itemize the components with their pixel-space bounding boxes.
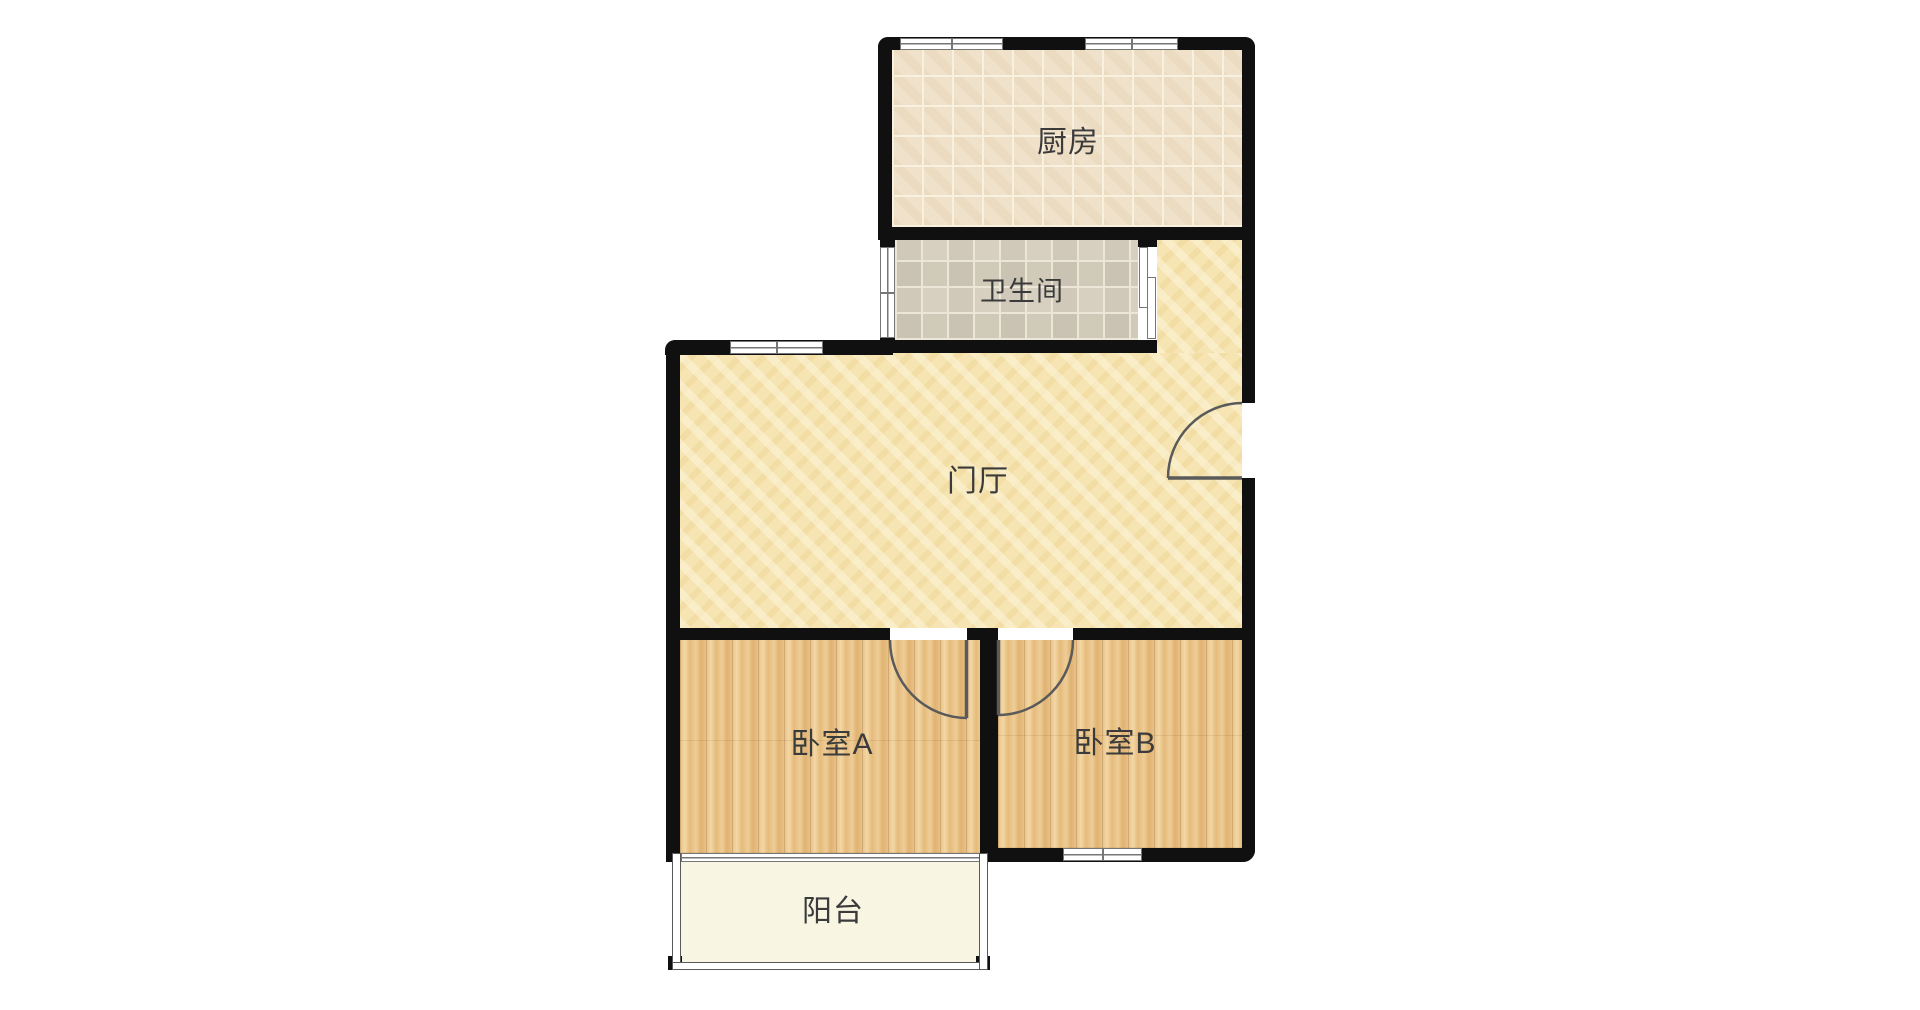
wall-left bbox=[666, 340, 680, 862]
bedroom-b-label: 卧室B bbox=[1073, 718, 1156, 762]
window-divider bbox=[881, 292, 894, 294]
wall-right-upper bbox=[1242, 37, 1255, 403]
hall-label: 门厅 bbox=[947, 456, 1009, 500]
bathroom-label: 卫生间 bbox=[980, 270, 1064, 309]
wall-hall-bottom-right bbox=[1073, 628, 1255, 640]
sliding-door-panel-2 bbox=[1147, 277, 1156, 339]
balcony-railing-right bbox=[979, 853, 988, 970]
corridor-floor bbox=[1157, 240, 1242, 355]
kitchen-window-1 bbox=[900, 38, 1003, 50]
bedroom-b-window bbox=[1063, 848, 1142, 861]
wall-bedroom-divider bbox=[980, 638, 998, 862]
window-divider bbox=[1131, 39, 1133, 49]
wall-hall-bottom-left bbox=[666, 628, 890, 640]
window-divider bbox=[776, 342, 778, 353]
kitchen-label: 厨房 bbox=[1037, 117, 1099, 161]
balcony-label: 阳台 bbox=[802, 886, 864, 930]
bathroom-window bbox=[880, 247, 895, 338]
window-divider bbox=[1102, 849, 1104, 860]
balcony-glass-wall bbox=[681, 853, 980, 862]
bedroom-a-label: 卧室A bbox=[790, 719, 873, 763]
wall-right-lower bbox=[1242, 478, 1255, 862]
wall-kitchen-left bbox=[878, 37, 892, 237]
kitchen-window-2 bbox=[1085, 38, 1178, 50]
balcony-railing-left bbox=[672, 853, 681, 970]
floor-plan: 厨房 卫生间 门厅 卧室A 卧室B 阳台 bbox=[0, 0, 1920, 1010]
window-divider bbox=[951, 39, 953, 49]
hall-window bbox=[730, 341, 823, 354]
balcony-railing-bottom bbox=[672, 962, 988, 970]
wall-bathroom-right-stub bbox=[1138, 237, 1157, 247]
wall-bathroom-bottom bbox=[880, 340, 1157, 353]
wall-kitchen-bottom bbox=[878, 227, 1255, 240]
